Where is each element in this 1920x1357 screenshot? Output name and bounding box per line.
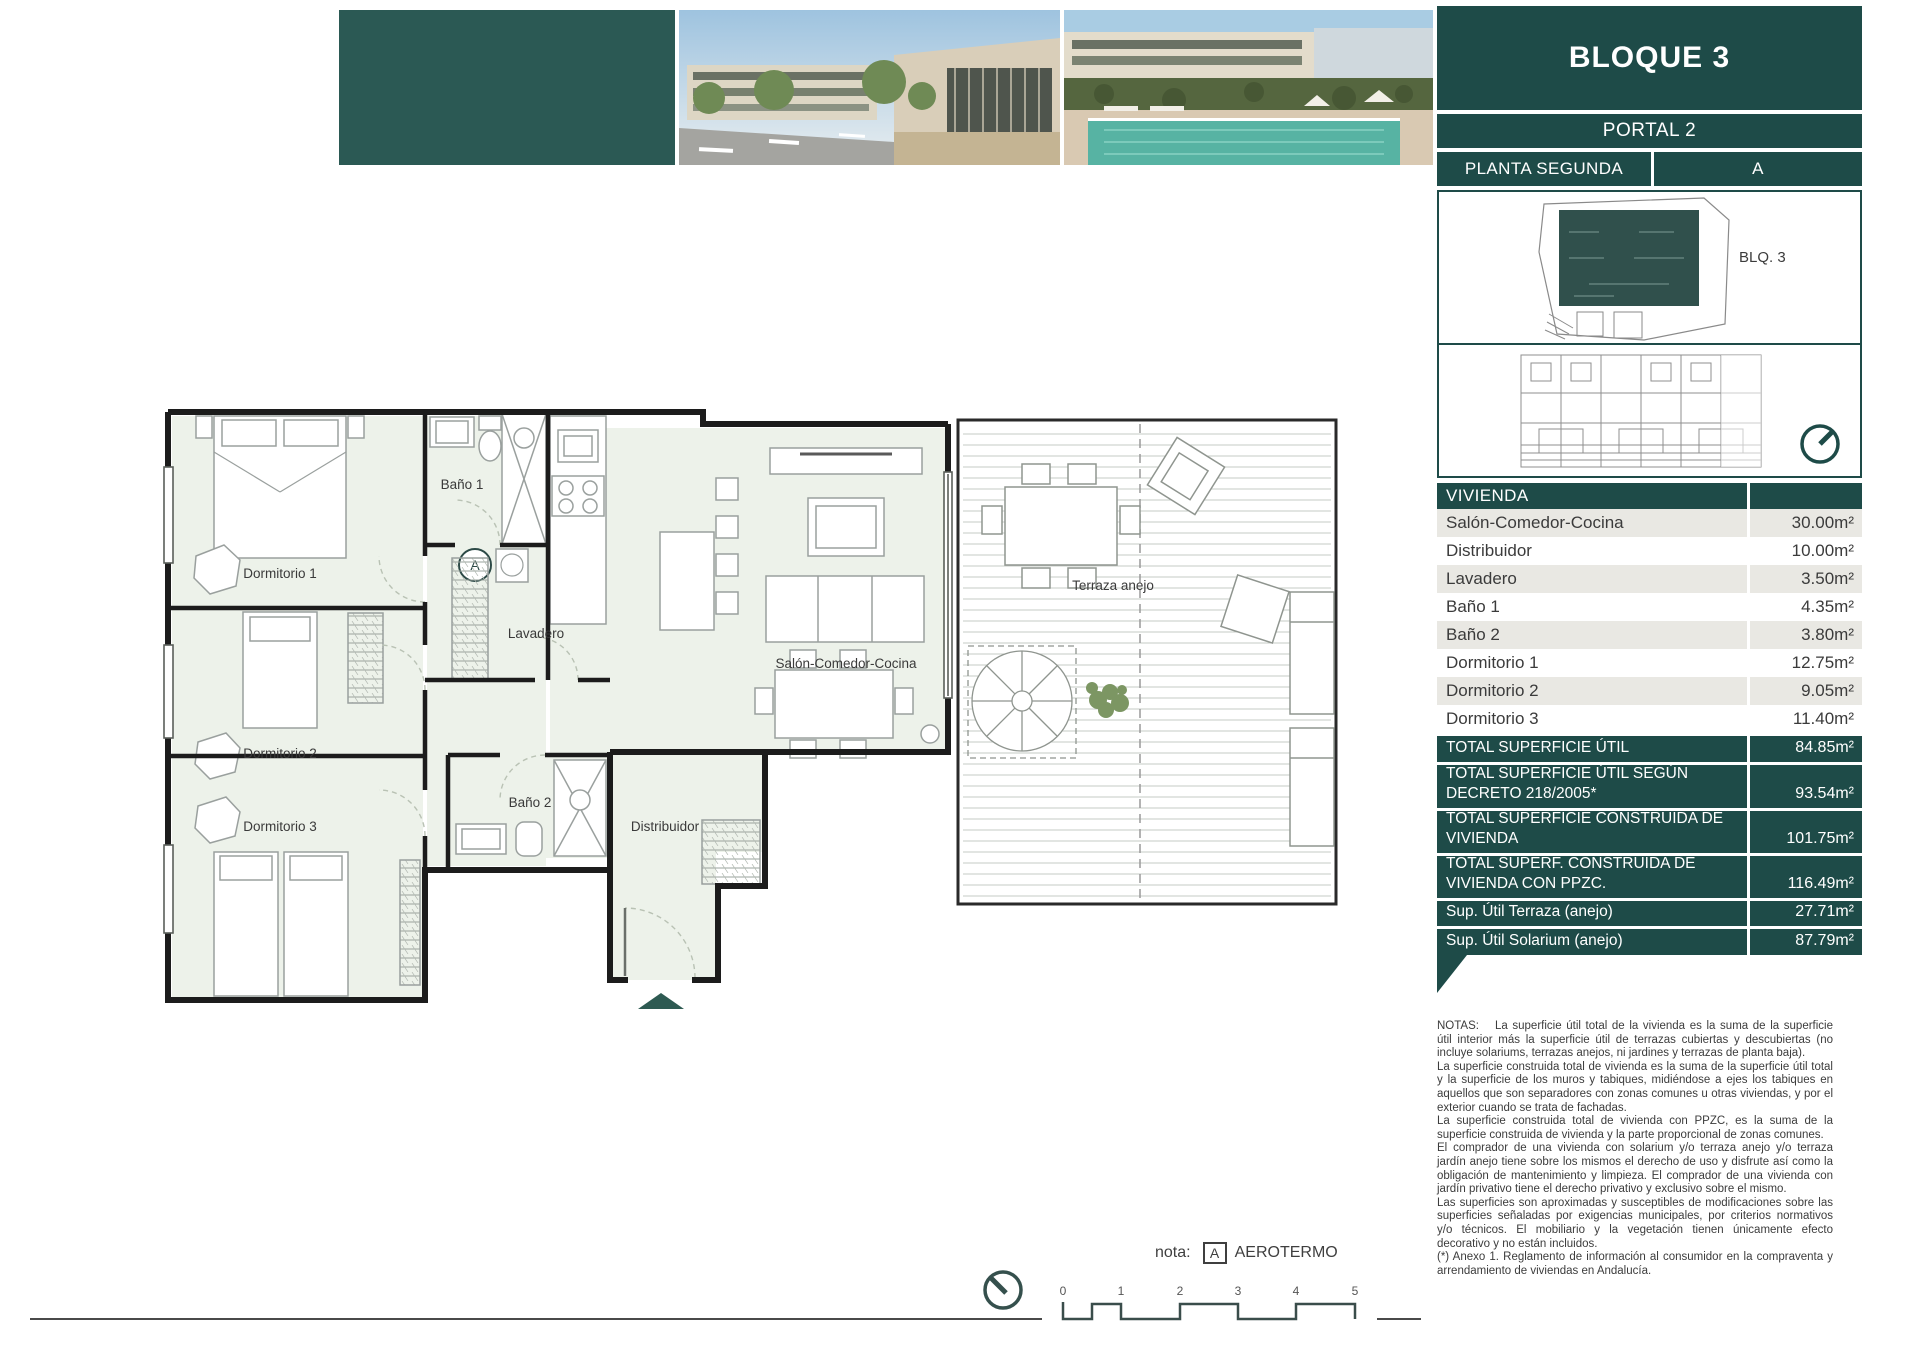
notes-block: NOTAS:La superficie útil total de la viv… xyxy=(1437,1020,1833,1278)
total-row: TOTAL SUPERFICIE CONSTRUIDA DE VIVIENDA1… xyxy=(1437,811,1862,853)
table-header-value xyxy=(1747,483,1862,509)
portal-title-text: PORTAL 2 xyxy=(1603,120,1696,142)
total-value: 87.79m² xyxy=(1747,929,1862,955)
block-title-text: BLOQUE 3 xyxy=(1569,41,1730,75)
footer-rule-right xyxy=(1377,1318,1421,1320)
svg-text:5: 5 xyxy=(1352,1284,1359,1298)
footer-rule-left xyxy=(30,1318,1042,1320)
total-label: Sup. Útil Solarium (anejo) xyxy=(1437,929,1747,955)
floor-unit-row: PLANTA SEGUNDA A xyxy=(1437,152,1862,186)
lavadero-closet xyxy=(452,558,488,680)
total-label: TOTAL SUPERF. CONSTRUIDA DE VIVIENDA CON… xyxy=(1437,856,1747,898)
table-row: Lavadero3.50m² xyxy=(1437,565,1862,593)
row-label: Lavadero xyxy=(1437,565,1747,593)
row-label: Baño 1 xyxy=(1437,593,1747,621)
total-label: Sup. Útil Terraza (anejo) xyxy=(1437,901,1747,926)
row-label: Dormitorio 3 xyxy=(1437,705,1747,733)
nota-label: nota: xyxy=(1155,1244,1191,1262)
total-label: TOTAL SUPERFICIE ÚTIL xyxy=(1437,736,1747,762)
table-row: Distribuidor10.00m² xyxy=(1437,537,1862,565)
table-row: Dormitorio 29.05m² xyxy=(1437,677,1862,705)
table-row: Salón-Comedor-Cocina30.00m² xyxy=(1437,509,1862,537)
total-row: TOTAL SUPERF. CONSTRUIDA DE VIVIENDA CON… xyxy=(1437,856,1862,898)
notes-paragraph: La superficie construida total de vivien… xyxy=(1437,1115,1833,1142)
notes-paragraph: NOTAS:La superficie útil total de la viv… xyxy=(1437,1020,1833,1061)
label-dormitorio2: Dormitorio 2 xyxy=(243,746,317,761)
row-label: Salón-Comedor-Cocina xyxy=(1437,509,1747,537)
scale-and-compass: 0 1 2 3 4 5 xyxy=(970,1265,1440,1335)
row-value: 12.75m² xyxy=(1747,649,1862,677)
total-row: TOTAL SUPERFICIE ÚTIL SEGÚN DECRETO 218/… xyxy=(1437,765,1862,808)
floor-plan: A xyxy=(160,400,1350,1020)
block-floorplan-strip xyxy=(1439,345,1860,476)
site-plan-block-label: BLQ. 3 xyxy=(1739,249,1786,266)
label-dormitorio3: Dormitorio 3 xyxy=(243,819,317,834)
total-value: 101.75m² xyxy=(1747,811,1862,853)
row-label: Dormitorio 1 xyxy=(1437,649,1747,677)
aerotermo-marker-box: A xyxy=(1203,1242,1227,1264)
brand-teal-block xyxy=(339,10,675,165)
table-header-label: VIVIENDA xyxy=(1437,483,1747,509)
row-value: 10.00m² xyxy=(1747,537,1862,565)
notes-title: NOTAS: xyxy=(1437,1020,1479,1032)
notes-paragraph: Las superficies son aproximadas y suscep… xyxy=(1437,1197,1833,1251)
svg-text:3: 3 xyxy=(1235,1284,1242,1298)
total-label: TOTAL SUPERFICIE ÚTIL SEGÚN DECRETO 218/… xyxy=(1437,765,1747,808)
location-frame: BLQ. 3 xyxy=(1437,190,1862,478)
north-compass-icon xyxy=(985,1272,1021,1308)
table-row: Dormitorio 112.75m² xyxy=(1437,649,1862,677)
row-label: Dormitorio 2 xyxy=(1437,677,1747,705)
photo-pool-render xyxy=(1064,10,1433,165)
row-label: Baño 2 xyxy=(1437,621,1747,649)
site-plan: BLQ. 3 xyxy=(1439,192,1860,343)
table-row: Baño 14.35m² xyxy=(1437,593,1862,621)
highlighted-unit xyxy=(1721,355,1761,467)
label-salon: Salón-Comedor-Cocina xyxy=(775,656,917,671)
nota-legend: nota: A AEROTERMO xyxy=(1155,1240,1338,1266)
svg-text:4: 4 xyxy=(1293,1284,1300,1298)
total-value: 93.54m² xyxy=(1747,765,1862,808)
svg-text:0: 0 xyxy=(1060,1284,1067,1298)
label-distribuidor: Distribuidor xyxy=(631,819,700,834)
total-row: Sup. Útil Terraza (anejo)27.71m² xyxy=(1437,901,1862,926)
svg-text:2: 2 xyxy=(1177,1284,1184,1298)
scale-bar xyxy=(1063,1302,1355,1319)
label-terraza: Terraza anejo xyxy=(1072,578,1154,593)
notes-paragraph: La superficie construida total de vivien… xyxy=(1437,1061,1833,1115)
row-value: 3.80m² xyxy=(1747,621,1862,649)
label-dormitorio1: Dormitorio 1 xyxy=(243,566,317,581)
nota-text: AEROTERMO xyxy=(1235,1244,1338,1262)
label-bano2: Baño 2 xyxy=(509,795,552,810)
table-row: Baño 23.80m² xyxy=(1437,621,1862,649)
surfaces-table: VIVIENDA Salón-Comedor-Cocina30.00m² Dis… xyxy=(1437,483,1862,955)
unit-label: A xyxy=(1651,152,1862,186)
portal-title: PORTAL 2 xyxy=(1437,114,1862,148)
pool xyxy=(1088,118,1400,165)
row-value: 4.35m² xyxy=(1747,593,1862,621)
total-value: 84.85m² xyxy=(1747,736,1862,762)
distribuidor-closet xyxy=(702,820,760,884)
orientation-icon xyxy=(1802,426,1838,462)
svg-text:1: 1 xyxy=(1118,1284,1125,1298)
total-value: 116.49m² xyxy=(1747,856,1862,898)
table-row: Dormitorio 311.40m² xyxy=(1437,705,1862,733)
photo-street-render xyxy=(679,10,1060,165)
notes-text: La superficie útil total de la vivienda … xyxy=(1437,1020,1833,1059)
total-row: TOTAL SUPERFICIE ÚTIL84.85m² xyxy=(1437,736,1862,762)
notes-paragraph: (*) Anexo 1. Reglamento de información a… xyxy=(1437,1251,1833,1278)
table-header-row: VIVIENDA xyxy=(1437,483,1862,509)
block-title: BLOQUE 3 xyxy=(1437,6,1862,110)
notes-paragraph: El comprador de una vivienda con solariu… xyxy=(1437,1142,1833,1196)
row-value: 9.05m² xyxy=(1747,677,1862,705)
plan-sheet: BLOQUE 3 PORTAL 2 PLANTA SEGUNDA A BLQ. … xyxy=(0,0,1920,1357)
row-label: Distribuidor xyxy=(1437,537,1747,565)
label-bano1: Baño 1 xyxy=(441,477,484,492)
row-value: 3.50m² xyxy=(1747,565,1862,593)
total-row: Sup. Útil Solarium (anejo)87.79m² xyxy=(1437,929,1862,955)
total-label: TOTAL SUPERFICIE CONSTRUIDA DE VIVIENDA xyxy=(1437,811,1747,853)
row-value: 30.00m² xyxy=(1747,509,1862,537)
label-lavadero: Lavadero xyxy=(508,626,564,641)
row-value: 11.40m² xyxy=(1747,705,1862,733)
scale-numbers: 0 1 2 3 4 5 xyxy=(1060,1284,1359,1298)
floor-label: PLANTA SEGUNDA xyxy=(1437,152,1651,186)
table-tail-pointer xyxy=(1437,955,1467,993)
terraza xyxy=(958,420,1336,904)
total-value: 27.71m² xyxy=(1747,901,1862,926)
entrance-arrow xyxy=(638,993,684,1009)
